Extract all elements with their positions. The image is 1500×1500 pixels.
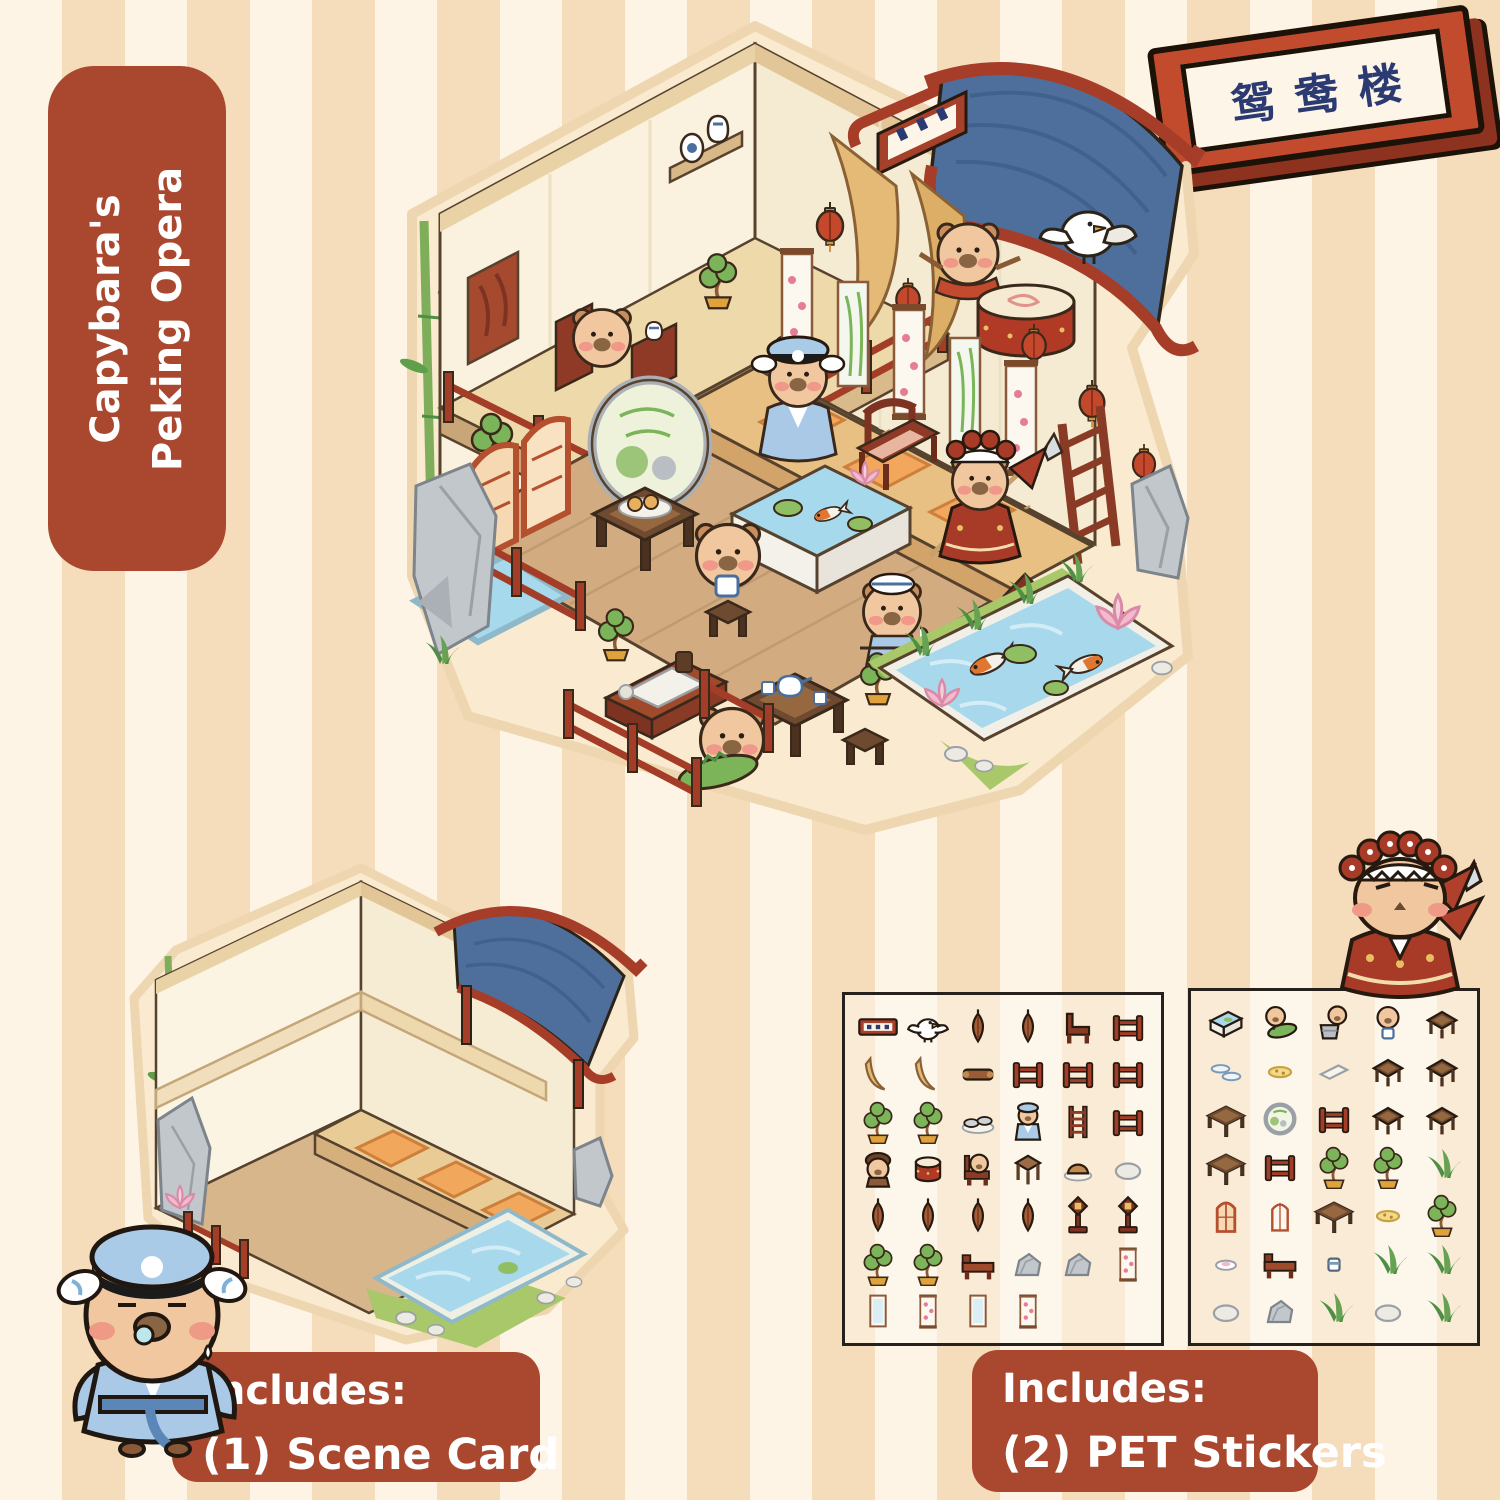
sticker-arch-door — [1204, 1193, 1248, 1237]
sticker-leaf-lantern — [1006, 1194, 1050, 1238]
sticker-tray — [1312, 1049, 1356, 1093]
crying-scholar-capybara — [40, 1205, 278, 1460]
sticker-plates — [1204, 1049, 1248, 1093]
product-title-line2: Peking Opera — [137, 166, 199, 470]
warrior-capybara-sticker — [1314, 818, 1486, 1010]
sticker-armchair — [1056, 1005, 1100, 1049]
sticker-fence — [1312, 1097, 1356, 1141]
sticker-grass — [1420, 1241, 1464, 1285]
sticker-rock — [1258, 1289, 1302, 1333]
sticker-sheet-2 — [1188, 988, 1480, 1346]
sticker-window — [856, 1289, 900, 1333]
main-scene-illustration — [320, 16, 1208, 904]
sticker-pebble — [1366, 1289, 1410, 1333]
sticker-leaf-lantern — [1006, 1005, 1050, 1049]
sticker-bench — [956, 1242, 1000, 1286]
sticker-capy-chair — [956, 1147, 1000, 1191]
plaque-panel: 鸳鸯楼 — [1180, 28, 1452, 154]
sticker-grass — [1420, 1145, 1464, 1189]
sticker-drape — [856, 1052, 900, 1096]
sticker-table — [1204, 1097, 1248, 1141]
page-background: Capybara's Peking Opera 鸳鸯楼 — [0, 0, 1500, 1500]
sticker-bun — [1056, 1147, 1100, 1191]
title-badge: Capybara's Peking Opera — [48, 66, 226, 571]
sticker-bird — [906, 1005, 950, 1049]
sticker-drape — [906, 1052, 950, 1096]
sticker-table — [1204, 1145, 1248, 1189]
sticker-small-table — [1366, 1049, 1410, 1093]
sticker-arch-window — [1258, 1193, 1302, 1237]
sticker-grass — [1420, 1289, 1464, 1333]
sticker-wall-scroll — [1006, 1289, 1050, 1333]
sticker-scroll — [956, 1052, 1000, 1096]
sticker-pond-tub — [1204, 1001, 1248, 1045]
product-title: Capybara's Peking Opera — [75, 166, 199, 470]
sticker-fence — [1006, 1052, 1050, 1096]
includes-pet-stickers-label: Includes: (2) PET Stickers — [972, 1350, 1318, 1492]
sticker-small-table — [1420, 1097, 1464, 1141]
sticker-bonsai — [906, 1100, 950, 1144]
sticker-wall-scroll — [1106, 1242, 1150, 1286]
gray-rock-right — [1132, 466, 1188, 578]
sticker-dish — [1204, 1241, 1248, 1285]
product-title-line1: Capybara's — [75, 166, 137, 470]
sticker-bonsai — [1312, 1145, 1356, 1189]
sticker-fence — [1106, 1005, 1150, 1049]
includes-item-2: (2) PET Stickers — [1002, 1428, 1288, 1478]
sticker-grass — [1312, 1289, 1356, 1333]
sticker-leaf-lantern — [956, 1005, 1000, 1049]
sticker-bonsai — [856, 1100, 900, 1144]
sticker-small-table — [1420, 1049, 1464, 1093]
sticker-leaf-lantern — [906, 1194, 950, 1238]
sticker-stool — [1006, 1147, 1050, 1191]
sticker-shoes — [956, 1100, 1000, 1144]
sticker-capy-blue — [1006, 1100, 1050, 1144]
sticker-cup — [1312, 1241, 1356, 1285]
includes-heading-2: Includes: — [1002, 1366, 1288, 1412]
sticker-rock — [1006, 1242, 1050, 1286]
sticker-capy-brown — [856, 1147, 900, 1191]
sticker-moon-window — [1258, 1097, 1302, 1141]
sticker-bonsai — [856, 1242, 900, 1286]
sticker-bonsai — [906, 1242, 950, 1286]
sticker-plate — [1366, 1193, 1410, 1237]
sticker-sign — [856, 1005, 900, 1049]
moon-window — [592, 380, 708, 508]
sticker-stand-lamp — [1056, 1194, 1100, 1238]
sticker-capy-croc — [1258, 1001, 1302, 1045]
sticker-leaf-lantern — [956, 1194, 1000, 1238]
sticker-drum — [906, 1147, 950, 1191]
sticker-bonsai — [1366, 1145, 1410, 1189]
sticker-sheet-1 — [842, 992, 1164, 1346]
sticker-bonsai — [1420, 1193, 1464, 1237]
sticker-fence — [1106, 1052, 1150, 1096]
sticker-rock — [1056, 1242, 1100, 1286]
sticker-stand-lamp — [1106, 1194, 1150, 1238]
sticker-fence — [1106, 1100, 1150, 1144]
sticker-pebble — [1106, 1147, 1150, 1191]
sticker-small-table — [1366, 1097, 1410, 1141]
sticker-window — [956, 1289, 1000, 1333]
sticker-table — [1312, 1193, 1356, 1237]
plaque-text: 鸳鸯楼 — [1207, 45, 1426, 138]
sticker-bench — [1258, 1241, 1302, 1285]
sticker-plate — [1258, 1049, 1302, 1093]
sticker-fence — [1056, 1052, 1100, 1096]
sticker-fence — [1258, 1145, 1302, 1189]
sticker-grass — [1366, 1241, 1410, 1285]
sticker-wall-scroll — [906, 1289, 950, 1333]
sticker-leaf-lantern — [856, 1194, 900, 1238]
sticker-pebble — [1204, 1289, 1248, 1333]
sticker-ladder — [1056, 1100, 1100, 1144]
